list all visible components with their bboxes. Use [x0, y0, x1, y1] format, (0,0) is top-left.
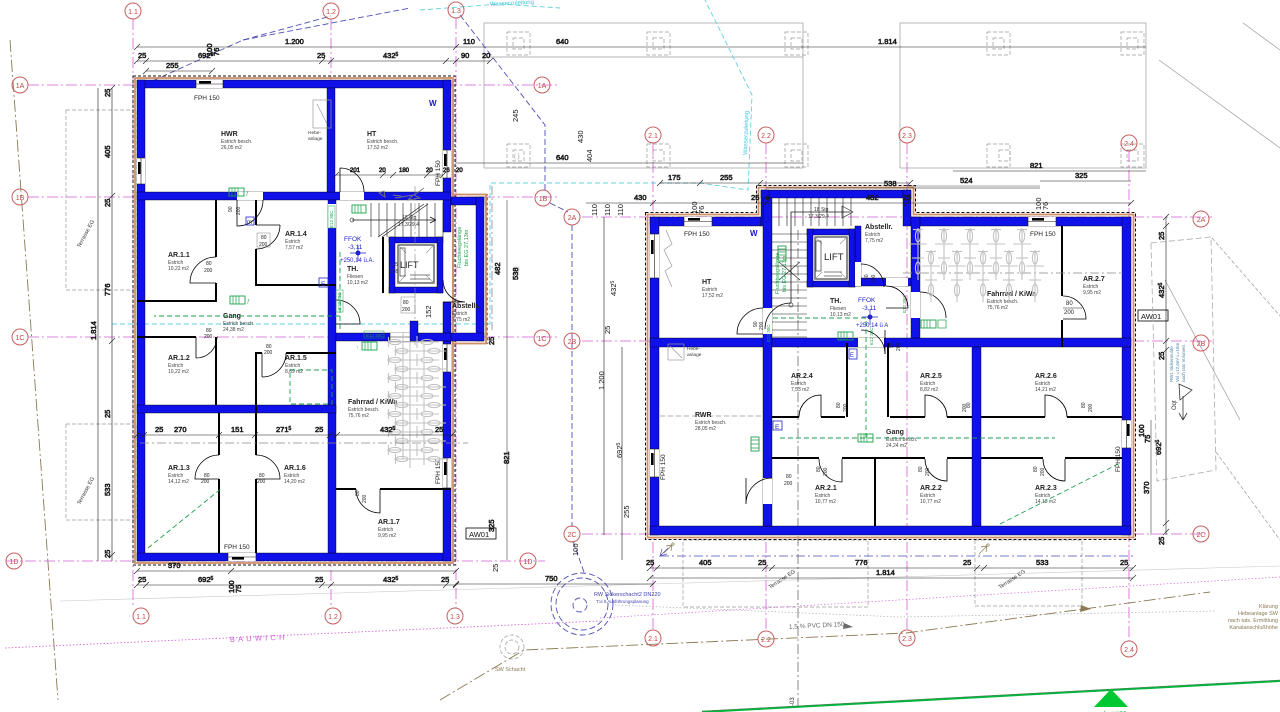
svg-text:200: 200 [925, 467, 931, 476]
svg-text:1.1: 1.1 [128, 9, 138, 16]
svg-text:FPH 150: FPH 150 [1030, 231, 1056, 238]
svg-text:RW Sickerschacht2 DN220: RW Sickerschacht2 DN220 [594, 592, 661, 598]
svg-text:1C: 1C [538, 336, 547, 343]
svg-text:405: 405 [103, 145, 112, 158]
svg-text:175: 175 [668, 173, 681, 182]
svg-text:1.814: 1.814 [876, 568, 895, 577]
svg-text:AW01: AW01 [1141, 312, 1161, 321]
svg-text:E12 30C: E12 30C [337, 292, 342, 310]
svg-text:AR.2.6: AR.2.6 [1035, 373, 1057, 380]
svg-text:430: 430 [634, 193, 647, 202]
svg-text:ƒ: ƒ [246, 191, 249, 197]
svg-text:E: E [321, 281, 326, 288]
svg-text:26: 26 [443, 168, 450, 174]
svg-text:20: 20 [456, 168, 463, 174]
svg-text:1.200: 1.200 [597, 371, 606, 390]
svg-text:17,52 m2: 17,52 m2 [367, 145, 388, 151]
svg-text:110: 110 [590, 204, 599, 216]
svg-text:538: 538 [884, 179, 897, 188]
svg-text:90: 90 [228, 206, 234, 212]
svg-text:LIFT: LIFT [824, 252, 844, 263]
svg-text:18 Stg: 18 Stg [402, 215, 417, 221]
svg-text:482: 482 [866, 193, 879, 202]
svg-text:25: 25 [646, 558, 654, 567]
svg-text:200: 200 [1064, 310, 1075, 316]
svg-text:80: 80 [403, 300, 409, 306]
svg-text:W: W [750, 229, 758, 238]
svg-text:FFOK: FFOK [858, 297, 876, 304]
svg-text:Hebe-: Hebe- [687, 346, 700, 352]
svg-text:FPH 150: FPH 150 [1115, 446, 1122, 472]
svg-text:200: 200 [204, 334, 213, 340]
svg-text:25: 25 [138, 575, 146, 584]
svg-text:255: 255 [720, 173, 733, 182]
svg-text:2.2: 2.2 [761, 133, 771, 140]
svg-text:-3,11: -3,11 [348, 244, 363, 251]
svg-text:m: m [247, 220, 252, 226]
svg-text:2.3: 2.3 [902, 636, 912, 643]
svg-text:80: 80 [1066, 301, 1073, 307]
svg-text:100: 100 [571, 543, 580, 556]
svg-text:AR.1.6: AR.1.6 [284, 465, 306, 472]
svg-text:325: 325 [1075, 171, 1088, 180]
svg-text:FPH 150: FPH 150 [684, 231, 710, 238]
svg-text:ƒ: ƒ [247, 299, 250, 305]
svg-text:25: 25 [315, 425, 323, 434]
svg-text:E12 30C: E12 30C [869, 327, 874, 345]
svg-text:2B: 2B [568, 339, 577, 346]
svg-text:90: 90 [461, 51, 469, 60]
svg-text:W: W [429, 99, 437, 108]
svg-text:AR.1.7: AR.1.7 [378, 519, 400, 526]
svg-text:AR.2.3: AR.2.3 [1035, 485, 1057, 492]
svg-text:640: 640 [556, 37, 569, 46]
svg-text:Vol =12,6m³ L=16m: Vol =12,6m³ L=16m [1175, 342, 1180, 382]
svg-text:-03: -03 [790, 697, 796, 706]
svg-text:7,57 m2: 7,57 m2 [285, 245, 303, 251]
svg-text:( ): ( ) [514, 154, 520, 160]
svg-text:115: 115 [390, 262, 398, 268]
svg-text:AR.2.5: AR.2.5 [920, 373, 942, 380]
svg-text:200: 200 [362, 494, 368, 503]
svg-text:1.2: 1.2 [328, 614, 338, 621]
svg-text:25: 25 [441, 575, 449, 584]
svg-text:bis EG 27,13m: bis EG 27,13m [464, 229, 470, 266]
svg-text:200: 200 [843, 403, 849, 412]
svg-text:1.814: 1.814 [878, 37, 897, 46]
svg-text:482: 482 [493, 262, 502, 275]
svg-text:Fahrrad / KiWa: Fahrrad / KiWa [348, 399, 397, 406]
svg-text:75,76 m2: 75,76 m2 [348, 413, 369, 419]
svg-text:2A: 2A [1197, 217, 1206, 224]
svg-text:270: 270 [174, 425, 187, 434]
svg-text:FPH 150: FPH 150 [224, 544, 250, 551]
svg-text:AR.1.2: AR.1.2 [168, 355, 190, 362]
svg-text:80: 80 [206, 261, 212, 267]
svg-text:E12 30C: E12 30C [329, 210, 334, 228]
svg-text:538: 538 [511, 267, 520, 280]
svg-text:80: 80 [355, 490, 361, 496]
svg-text:76: 76 [697, 206, 706, 214]
svg-text:1B: 1B [539, 196, 548, 203]
svg-text:2.4: 2.4 [1124, 647, 1134, 654]
svg-text:AR.1.3: AR.1.3 [168, 465, 190, 472]
svg-text:Gang: Gang [886, 429, 904, 436]
svg-text:HT: HT [702, 279, 712, 286]
svg-text:1.3: 1.3 [450, 614, 460, 621]
svg-text:25: 25 [903, 193, 911, 202]
svg-text:25: 25 [315, 575, 323, 584]
svg-text:533: 533 [1036, 558, 1049, 567]
svg-text:776: 776 [855, 558, 868, 567]
svg-text:20: 20 [482, 51, 490, 60]
svg-text:+250,14 ü.A.: +250,14 ü.A. [340, 258, 375, 264]
svg-text:90: 90 [889, 342, 895, 348]
svg-text:200: 200 [236, 206, 242, 215]
svg-text:1A: 1A [538, 83, 547, 90]
svg-text:E: E [775, 424, 780, 431]
svg-text:AR.1.5: AR.1.5 [285, 355, 307, 362]
svg-text:nach tats. Ermittlung: nach tats. Ermittlung [1228, 618, 1278, 624]
svg-text:TH.: TH. [830, 298, 841, 305]
svg-text:430: 430 [576, 130, 585, 143]
svg-text:255: 255 [166, 61, 179, 70]
svg-text:25: 25 [603, 326, 612, 334]
svg-text:LIFT: LIFT [400, 260, 419, 270]
svg-text:anlage: anlage [308, 136, 323, 142]
svg-text:524: 524 [960, 176, 973, 185]
svg-text:Abstellr.: Abstellr. [865, 224, 893, 231]
svg-text:80: 80 [786, 474, 792, 480]
svg-text:Klärung: Klärung [1259, 604, 1278, 610]
svg-text:200: 200 [784, 481, 793, 487]
svg-text:1D: 1D [524, 559, 533, 566]
svg-text:2.2: 2.2 [761, 637, 771, 644]
svg-text:18 Stg: 18 Stg [814, 207, 829, 213]
svg-text:1.200: 1.200 [285, 37, 304, 46]
svg-text:24,24 m2: 24,24 m2 [886, 443, 907, 449]
svg-text:20: 20 [379, 168, 386, 174]
svg-text:AR.2.7: AR.2.7 [1083, 276, 1105, 283]
svg-text:1B: 1B [16, 195, 25, 202]
svg-text:FPH 150: FPH 150 [435, 160, 442, 186]
svg-text:80: 80 [816, 466, 822, 472]
svg-text:SW Schacht: SW Schacht [495, 667, 526, 673]
svg-text:Gang: Gang [223, 313, 241, 320]
svg-text:-3,11: -3,11 [862, 305, 877, 312]
svg-text:8,82 m2: 8,82 m2 [920, 387, 938, 393]
svg-text:AR.1.4: AR.1.4 [285, 231, 307, 238]
svg-text:10,22 m2: 10,22 m2 [168, 369, 189, 375]
svg-text:RWR: RWR [695, 412, 712, 419]
svg-text:1C: 1C [16, 335, 25, 342]
svg-text:HT: HT [367, 131, 377, 138]
svg-text:9,95 m2: 9,95 m2 [378, 533, 396, 539]
svg-text:17,52 m2: 17,52 m2 [702, 293, 723, 299]
svg-text:2C: 2C [568, 532, 577, 539]
svg-text:10,22 m2: 10,22 m2 [168, 266, 189, 272]
svg-text:E: E [850, 353, 854, 359]
svg-text:25: 25 [103, 410, 112, 418]
svg-text:80: 80 [1033, 466, 1039, 472]
svg-text:AR.2.1: AR.2.1 [815, 485, 837, 492]
svg-text:2.1: 2.1 [648, 636, 658, 643]
svg-text:AR.2.2: AR.2.2 [920, 485, 942, 492]
svg-text:25: 25 [751, 193, 759, 202]
svg-text:1.2: 1.2 [326, 9, 336, 16]
svg-text:2.3: 2.3 [902, 133, 912, 140]
svg-text:26,05 m2: 26,05 m2 [221, 145, 242, 151]
svg-text:25: 25 [435, 425, 443, 434]
svg-text:208: 208 [390, 269, 399, 275]
svg-text:T30 lt.Ausführungsplanung: T30 lt.Ausführungsplanung [596, 599, 649, 604]
svg-text:152: 152 [424, 305, 433, 318]
svg-text:20: 20 [426, 168, 433, 174]
svg-text:110: 110 [463, 37, 475, 46]
svg-text:200: 200 [1040, 467, 1046, 476]
svg-text:17,3/29,4: 17,3/29,4 [398, 222, 419, 228]
svg-text:E12 30C: E12 30C [766, 324, 771, 342]
svg-text:2A: 2A [568, 215, 577, 222]
svg-text:151: 151 [231, 425, 244, 434]
svg-text:80: 80 [918, 466, 924, 472]
svg-text:7,53 m2: 7,53 m2 [791, 387, 809, 393]
svg-text:2C: 2C [1197, 532, 1206, 539]
svg-text:255: 255 [622, 505, 631, 518]
svg-text:Hebeanlage SW: Hebeanlage SW [1238, 611, 1279, 617]
svg-text:25: 25 [1120, 558, 1128, 567]
svg-text:533: 533 [103, 483, 112, 496]
svg-text:25: 25 [155, 425, 163, 434]
svg-text:7,75 m2: 7,75 m2 [452, 317, 470, 323]
svg-text:2.4: 2.4 [1124, 141, 1134, 148]
svg-text:AR.2.4: AR.2.4 [791, 373, 813, 380]
svg-text:anlage: anlage [687, 352, 702, 358]
svg-text:76: 76 [212, 48, 221, 56]
svg-text:200: 200 [264, 350, 273, 356]
svg-text:1A: 1A [16, 83, 25, 90]
svg-text:10,13 m2: 10,13 m2 [830, 312, 851, 318]
svg-text:821: 821 [1030, 161, 1043, 170]
svg-text:200: 200 [759, 321, 765, 330]
svg-text:180: 180 [399, 168, 410, 174]
svg-text:75,76 m2: 75,76 m2 [987, 305, 1008, 311]
svg-text:↑: ↑ [356, 345, 359, 351]
svg-text:25: 25 [758, 558, 766, 567]
svg-text:10,77 m2: 10,77 m2 [920, 499, 941, 505]
svg-text:200: 200 [871, 274, 877, 283]
svg-text:200: 200 [962, 403, 968, 412]
svg-text:110: 110 [616, 204, 625, 216]
svg-text:HWR: HWR [221, 131, 238, 138]
svg-text:821: 821 [502, 451, 511, 464]
svg-text:Abstellr.: Abstellr. [452, 303, 480, 310]
svg-text:25: 25 [1157, 537, 1166, 545]
svg-text:75: 75 [1143, 435, 1152, 443]
svg-text:200: 200 [204, 268, 213, 274]
svg-text:1.1: 1.1 [136, 614, 146, 621]
svg-text:14,20 m2: 14,20 m2 [284, 479, 305, 485]
svg-text:25: 25 [1157, 352, 1166, 360]
svg-text:FFOK: FFOK [344, 236, 362, 243]
svg-text:Hebe-: Hebe- [308, 130, 321, 136]
svg-text:201: 201 [350, 168, 361, 174]
svg-text:AR.1.1: AR.1.1 [168, 252, 190, 259]
svg-text:17,3/29,4: 17,3/29,4 [808, 214, 829, 220]
svg-text:80: 80 [836, 402, 842, 408]
svg-text:28,05 m2: 28,05 m2 [695, 426, 716, 432]
svg-text:75: 75 [234, 585, 243, 593]
svg-text:6: 6 [766, 196, 769, 202]
svg-text:404: 404 [585, 149, 594, 162]
svg-text:25: 25 [1157, 232, 1166, 240]
svg-text:80: 80 [864, 274, 870, 280]
svg-text:25: 25 [491, 564, 500, 572]
svg-text:25: 25 [138, 51, 146, 60]
svg-text:FPH 150: FPH 150 [194, 95, 220, 102]
svg-text:200: 200 [257, 479, 266, 485]
svg-text:370: 370 [1142, 481, 1151, 494]
svg-text:200: 200 [201, 479, 210, 485]
svg-text:E12 30C: E12 30C [366, 333, 384, 338]
svg-text:TH.: TH. [347, 266, 358, 273]
svg-text:25: 25 [487, 337, 496, 345]
svg-text:1.3: 1.3 [451, 8, 461, 15]
svg-text:10,77 m2: 10,77 m2 [815, 499, 836, 505]
svg-text:9,95 m2: 9,95 m2 [1083, 290, 1101, 296]
svg-text:10,13 m2: 10,13 m2 [347, 280, 368, 286]
svg-text:25: 25 [103, 199, 112, 207]
svg-text:14,12 m2: 14,12 m2 [168, 479, 189, 485]
svg-text:2.1: 2.1 [648, 133, 658, 140]
svg-text:200: 200 [896, 342, 902, 351]
svg-text:25: 25 [103, 550, 112, 558]
svg-text:80: 80 [261, 235, 267, 241]
svg-text:200: 200 [1088, 403, 1094, 412]
svg-text:Fluchtwegslänge: Fluchtwegslänge [457, 227, 463, 268]
svg-text:25: 25 [963, 558, 971, 567]
svg-text:RW1 Sickermulde: RW1 Sickermulde [1169, 346, 1174, 382]
svg-text:1D: 1D [10, 559, 19, 566]
svg-text:14,21 m2: 14,21 m2 [1035, 387, 1056, 393]
svg-text:nach tats Volumen: nach tats Volumen [1181, 344, 1186, 382]
svg-text:25: 25 [103, 89, 112, 97]
svg-text:110: 110 [603, 204, 612, 216]
svg-text:24,38 m2: 24,38 m2 [223, 327, 244, 333]
svg-text:776: 776 [103, 283, 112, 296]
svg-text:80: 80 [1081, 402, 1087, 408]
svg-text:1.814: 1.814 [89, 321, 98, 340]
svg-text:Kanalanschlußhöhe: Kanalanschlußhöhe [1229, 625, 1278, 631]
svg-text:7,75 m2: 7,75 m2 [865, 238, 883, 244]
svg-text:E12 30C: E12 30C [902, 295, 907, 313]
svg-text:AW01: AW01 [469, 530, 489, 539]
svg-text:25: 25 [317, 51, 325, 60]
svg-text:370: 370 [168, 561, 181, 570]
svg-text:200: 200 [402, 307, 411, 313]
svg-text:750: 750 [545, 574, 558, 583]
svg-text:200: 200 [823, 467, 829, 476]
svg-text:FPH 150: FPH 150 [660, 454, 667, 480]
svg-text:640: 640 [556, 153, 569, 162]
svg-text:245: 245 [511, 109, 520, 122]
svg-text:2B: 2B [1197, 341, 1206, 348]
svg-text:Oqt: Oqt [1172, 400, 1178, 410]
svg-text:405: 405 [699, 558, 712, 567]
